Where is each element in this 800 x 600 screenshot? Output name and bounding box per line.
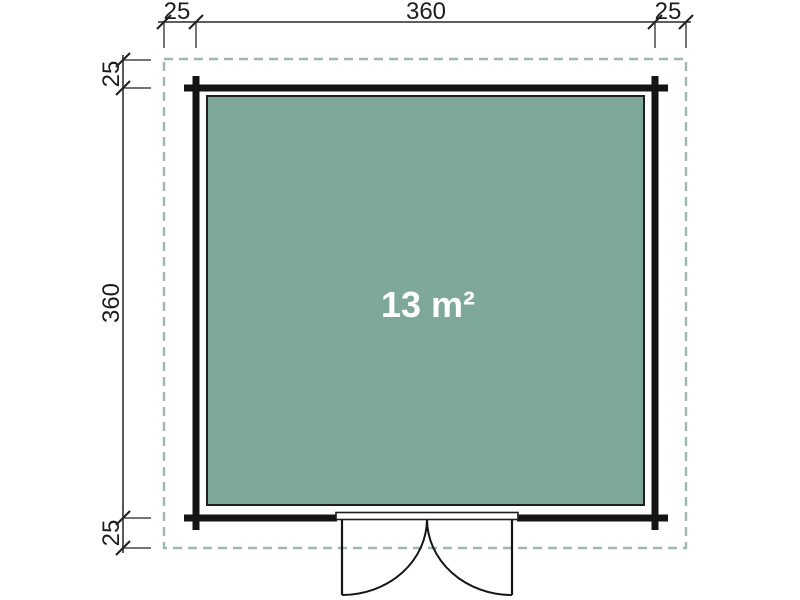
door-swing-arc-left <box>342 519 427 595</box>
dimension-top: 25 360 25 <box>157 0 693 48</box>
floor-plan-canvas: 13 m² 25 360 25 2 <box>0 0 800 600</box>
door-swing-arc-right <box>427 519 512 595</box>
dimension-left-depth-label: 360 <box>98 283 125 323</box>
floor-plan: 13 m² 25 360 25 2 <box>0 0 800 600</box>
door-frame <box>336 513 518 520</box>
dimension-left-overhang-top-label: 25 <box>98 61 125 88</box>
double-door <box>336 513 518 596</box>
dimension-left-overhang-bottom-label: 25 <box>98 520 125 547</box>
area-label: 13 m² <box>381 284 475 325</box>
dimension-top-width-label: 360 <box>406 0 446 25</box>
dimension-top-overhang-left-label: 25 <box>164 0 191 25</box>
dimension-top-overhang-right-label: 25 <box>655 0 682 25</box>
dimension-left: 25 360 25 <box>98 53 151 555</box>
